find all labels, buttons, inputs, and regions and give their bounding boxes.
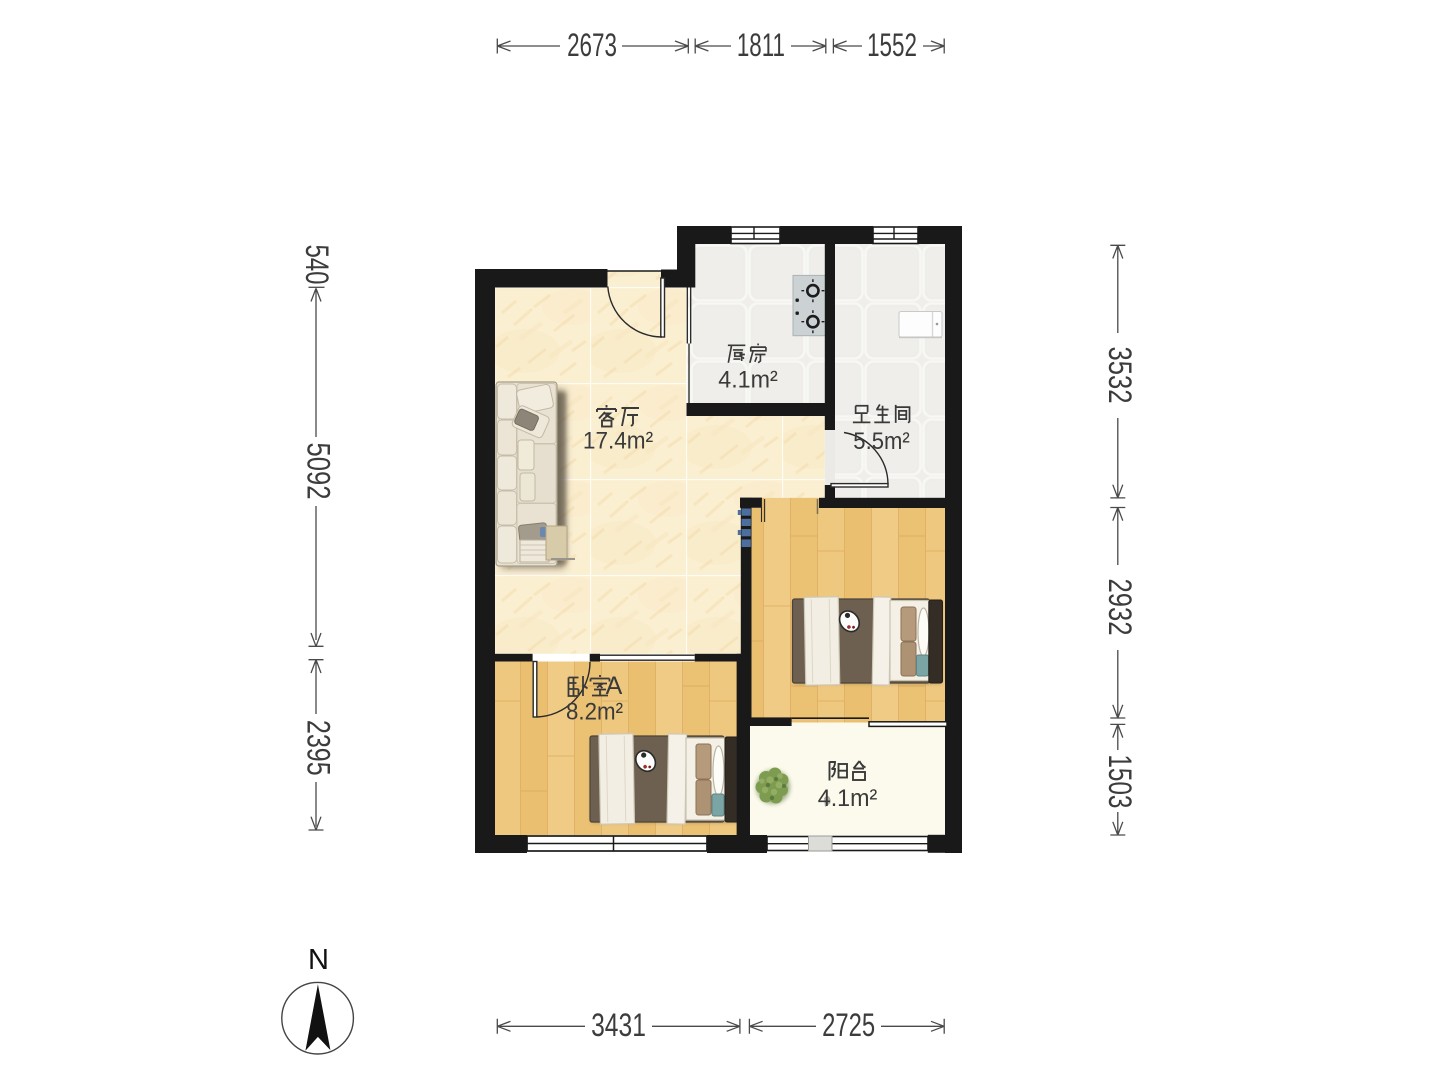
svg-text:1811: 1811: [737, 27, 785, 63]
svg-text:4.1m²: 4.1m²: [718, 367, 778, 393]
svg-text:2932: 2932: [1101, 579, 1136, 636]
svg-text:8.2m²: 8.2m²: [566, 698, 623, 725]
svg-text:2395: 2395: [300, 720, 336, 776]
svg-text:1552: 1552: [867, 27, 917, 63]
svg-text:1503: 1503: [1101, 754, 1137, 808]
svg-text:17.4m²: 17.4m²: [583, 427, 653, 454]
svg-text:5.5m²: 5.5m²: [853, 427, 910, 454]
svg-text:3431: 3431: [591, 1008, 646, 1044]
svg-text:5092: 5092: [300, 443, 335, 500]
svg-text:N: N: [308, 944, 329, 976]
svg-text:2725: 2725: [822, 1006, 875, 1042]
svg-text:A: A: [606, 672, 623, 700]
svg-text:540: 540: [299, 244, 335, 284]
svg-text:3532: 3532: [1101, 347, 1136, 404]
svg-text:4.1m²: 4.1m²: [818, 786, 878, 812]
svg-text:2673: 2673: [567, 27, 617, 63]
